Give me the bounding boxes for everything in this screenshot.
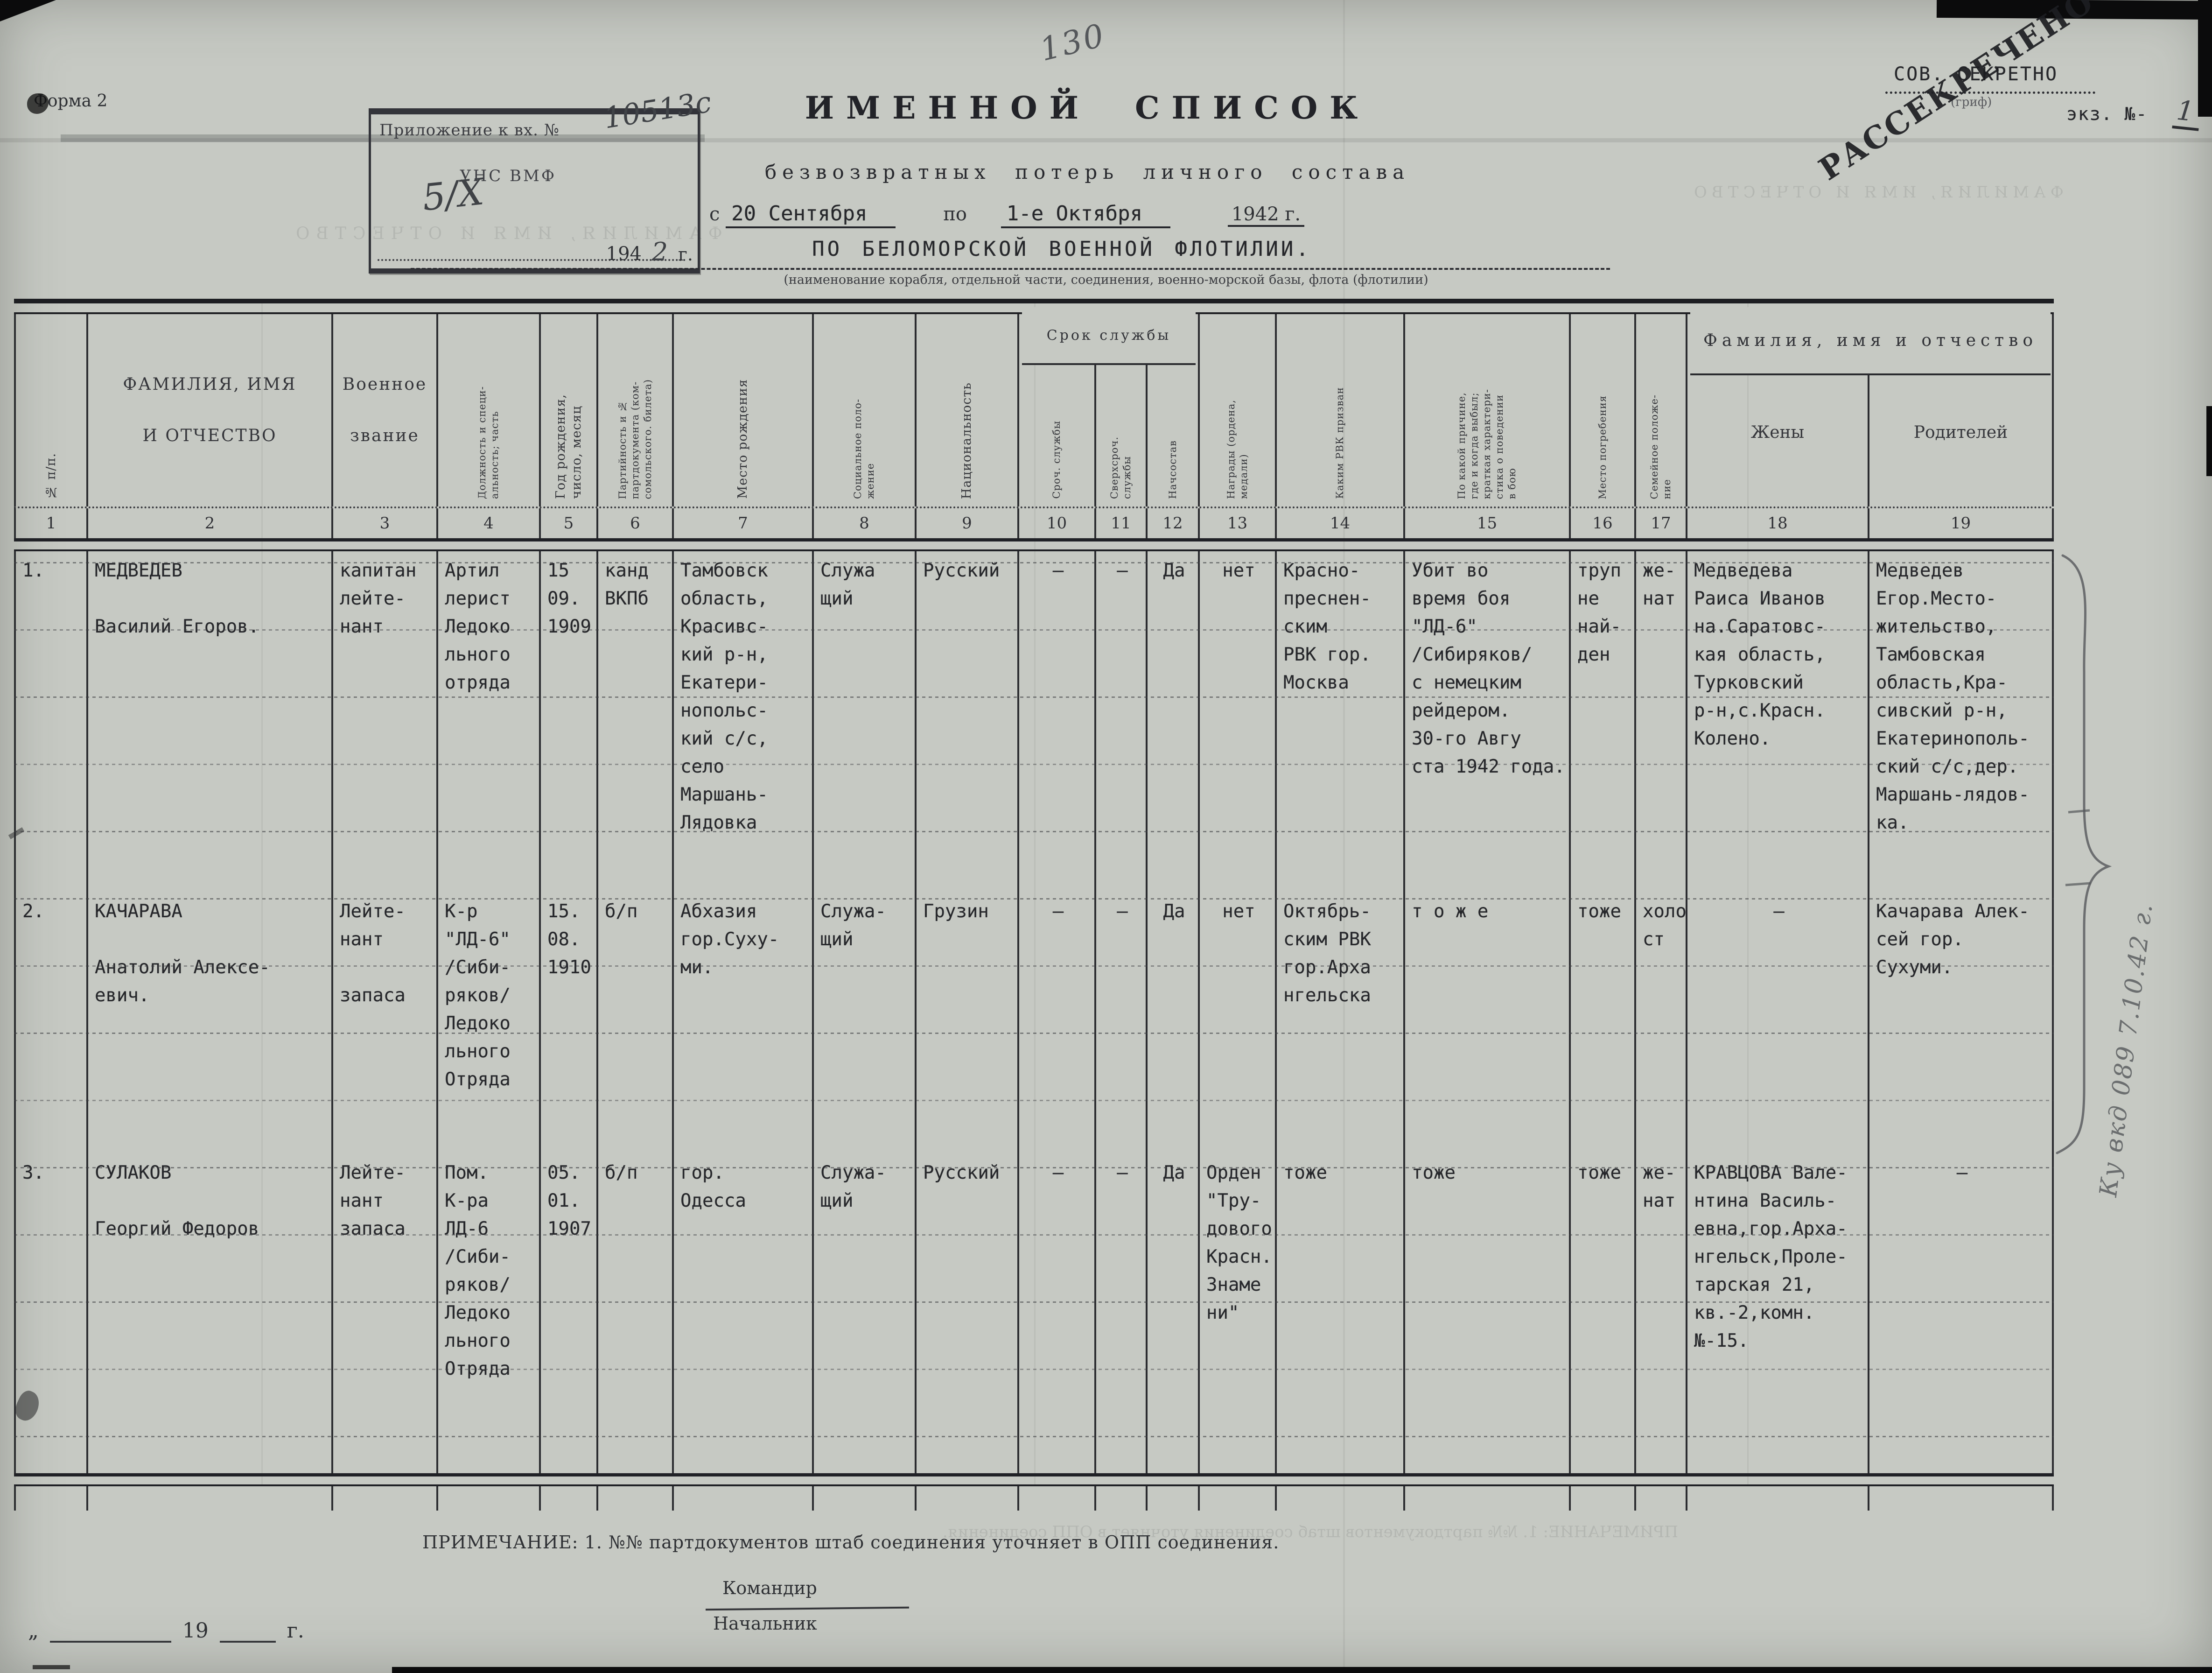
period-year: 1942 г. <box>1228 204 1304 227</box>
scan-edge-top-left <box>0 0 56 21</box>
cell-r3-birthplace: гор. Одесса <box>674 1153 814 1473</box>
cell-r3-num: 3. <box>16 1153 88 1473</box>
col-header-4-label: Должность и специ- альность; часть <box>476 386 501 499</box>
unit-name: ПО БЕЛОМОРСКОЙ ВОЕННОЙ ФЛОТИЛИИ. <box>607 237 1517 261</box>
copy-number-handwritten: 1 <box>2172 94 2202 131</box>
cell-r1-burial: труп не най- ден <box>1571 551 1636 892</box>
bleedthrough-top-right: ФАМИЛИЯ, ИМЯ И ОТЧЕСТВО <box>1689 183 2064 202</box>
dotted-line <box>14 1436 2054 1437</box>
cell-r3-awards: Орден "Тру- дового Красн. Знаме ни" <box>1200 1153 1277 1473</box>
footer-note: ПРИМЕЧАНИЕ: 1. №№ партдокументов штаб со… <box>422 1532 1279 1553</box>
stamp-number-handwritten: 10513с <box>602 84 714 135</box>
cell-r3-rank: Лейте- нант запаса <box>333 1153 438 1473</box>
colnum-14: 14 <box>1277 508 1405 538</box>
cell-r1-birthdate: 15 09. 1909 <box>541 551 598 892</box>
cell-r2-burial: тоже <box>1571 892 1636 1153</box>
cell-r1-srv-extended: – <box>1096 551 1148 892</box>
dotted-line <box>14 898 2054 900</box>
document-title: ИМЕННОЙ СПИСОК <box>789 90 1386 126</box>
group-header-family: Фамилия, имя и отчество <box>1690 307 2051 375</box>
col-header-15: По какой причине, где и когда выбыл; кра… <box>1405 314 1571 506</box>
cell-r2-rank: Лейте- нант запаса <box>333 892 438 1153</box>
colnum-9: 9 <box>917 508 1019 538</box>
cell-r3-marital: же- нат <box>1636 1153 1687 1473</box>
scan-edge-bottom <box>392 1667 2212 1673</box>
col-header-4: Должность и специ- альность; часть <box>438 314 541 506</box>
cell-r3-burial: тоже <box>1571 1153 1636 1473</box>
cell-r2-num: 2. <box>16 892 88 1153</box>
cell-r3-srv-regular: – <box>1019 1153 1096 1473</box>
colnum-15: 15 <box>1405 508 1571 538</box>
cell-r2-srv-extended: – <box>1096 892 1148 1153</box>
cell-r1-rvk: Красно- преснен- ским РВК гор. Москва <box>1277 551 1405 892</box>
col-header-14: Каким РВК призван <box>1277 314 1405 506</box>
cell-r2-srv-regular: – <box>1019 892 1096 1153</box>
col-header-3: Военное звание <box>333 314 438 506</box>
cell-r3-parents: — <box>1869 1153 2054 1473</box>
unit-underline <box>411 268 1610 270</box>
col-header-3-label: Военное звание <box>343 359 427 462</box>
col-header-18-label: Жены <box>1751 423 1804 442</box>
stamp-line1: Приложение к вх. № <box>379 121 560 140</box>
colnum-10: 10 <box>1019 508 1096 538</box>
dotted-line <box>14 1234 2054 1236</box>
dotted-line <box>14 562 2054 563</box>
cell-r2-social: Служа- щий <box>814 892 917 1153</box>
col-header-8-label: Социальное поло- жение <box>852 399 877 499</box>
period-mid: по <box>901 204 995 225</box>
col-header-6-label: Партийность и № партдокумента (ком- сомо… <box>616 379 654 499</box>
dotted-line <box>14 1167 2054 1168</box>
cell-r3-officer: Да <box>1148 1153 1200 1473</box>
dotted-line <box>14 965 2054 967</box>
dotted-line <box>14 629 2054 631</box>
col-header-15-label: По какой причине, где и когда выбыл; кра… <box>1456 389 1519 499</box>
colnum-18: 18 <box>1687 508 1869 538</box>
col-header-2-label: ФАМИЛИЯ, ИМЯ И ОТЧЕСТВО <box>123 359 296 462</box>
cell-r3-cause: тоже <box>1405 1153 1571 1473</box>
cell-r2-cause: т о ж е <box>1405 892 1571 1153</box>
commander-label: Командир <box>722 1578 817 1598</box>
footer-blank-line-1 <box>50 1622 171 1643</box>
col-header-17: Семейное положе- ние <box>1636 314 1687 506</box>
document-subtitle: безвозвратных потерь личного состава <box>700 161 1475 183</box>
cell-r3-rvk: тоже <box>1277 1153 1405 1473</box>
dotted-line <box>14 1100 2054 1101</box>
stamp-date-handwritten: 5/X <box>420 171 486 219</box>
cell-r1-party: канд ВКПб <box>598 551 674 892</box>
cell-r1-position: Артил лерист Ледоко льного отряда <box>438 551 541 892</box>
footer-open-quote: „ <box>28 1619 39 1643</box>
colnum-17: 17 <box>1636 508 1687 538</box>
footer-year-suffix: г. <box>287 1619 304 1643</box>
cell-r2-parents: Качарава Алек- сей гор. Сухуми. <box>1869 892 2054 1153</box>
col-header-8: Социальное поло- жение <box>814 314 917 506</box>
header-body-divider <box>14 538 2054 551</box>
col-header-9-label: Национальность <box>959 382 975 499</box>
col-header-13-label: Награды (ордена, медали) <box>1225 400 1250 499</box>
table-bottom-ticks <box>14 1486 2054 1511</box>
col-header-7-label: Место рождения <box>735 379 751 499</box>
document-page: ФАМИЛИЯ, ИМЯ И ОТЧЕСТВО ФАМИЛИЯ, ИМЯ И О… <box>0 0 2212 1673</box>
cell-r3-name: СУЛАКОВ Георгий Федоров <box>88 1153 333 1473</box>
colnum-16: 16 <box>1571 508 1636 538</box>
dotted-line <box>14 1369 2054 1370</box>
cell-r2-birthdate: 15. 08. 1910 <box>541 892 598 1153</box>
col-header-12-label: Начсостав <box>1167 440 1179 499</box>
period-to: 1-е Октября <box>1001 202 1170 228</box>
cell-r2-marital: холо ст <box>1636 892 1687 1153</box>
colnum-5: 5 <box>541 508 598 538</box>
period-from: 20 Сентября <box>726 202 895 228</box>
pencil-brace <box>2050 551 2115 1162</box>
col-header-14-label: Каким РВК призван <box>1334 387 1346 499</box>
cell-r2-awards: нет <box>1200 892 1277 1153</box>
col-header-6: Партийность и № партдокумента (ком- сомо… <box>598 314 674 506</box>
cell-r1-parents: Медведев Егор.Место- жительство, Тамбовс… <box>1869 551 2054 892</box>
col-header-19-label: Родителей <box>1914 423 2008 442</box>
table-row: 1. МЕДВЕДЕВ Василий Егоров. капитан лейт… <box>14 551 2054 892</box>
col-header-7: Место рождения <box>674 314 814 506</box>
cell-r3-birthdate: 05. 01. 1907 <box>541 1153 598 1473</box>
cell-r2-party: б/п <box>598 892 674 1153</box>
copy-number-label: экз. №- <box>2066 104 2148 124</box>
colnum-6: 6 <box>598 508 674 538</box>
cell-r1-srv-regular: – <box>1019 551 1096 892</box>
cell-r2-nationality: Грузин <box>917 892 1019 1153</box>
table-row: 2. КАЧАРАВА Анатолий Алексе- евич. Лейте… <box>14 892 2054 1153</box>
col-header-16: Место погребения <box>1571 314 1636 506</box>
column-number-row: 1 2 3 4 5 6 7 8 9 10 11 12 13 14 15 16 1… <box>14 506 2054 538</box>
cell-r2-wife: – <box>1687 892 1869 1153</box>
dotted-line <box>14 1301 2054 1303</box>
unit-caption: (наименование корабля, отдельной части, … <box>686 273 1526 287</box>
cell-r2-birthplace: Абхазия гор.Суху- ми. <box>674 892 814 1153</box>
footer-year-blank: 19 <box>182 1619 209 1643</box>
casualty-table: № п/п. ФАМИЛИЯ, ИМЯ И ОТЧЕСТВО Военное з… <box>14 299 2054 1511</box>
dotted-line <box>14 831 2054 832</box>
cell-r1-nationality: Русский <box>917 551 1019 892</box>
cell-r1-social: Служа щий <box>814 551 917 892</box>
col-header-1-label: № п/п. <box>43 453 59 499</box>
colnum-1: 1 <box>16 508 88 538</box>
cell-r1-officer: Да <box>1148 551 1200 892</box>
col-header-1: № п/п. <box>16 314 88 506</box>
table-row: 3. СУЛАКОВ Георгий Федоров Лейте- нант з… <box>14 1153 2054 1473</box>
colnum-4: 4 <box>438 508 541 538</box>
scan-edge-bottom-left <box>33 1665 70 1669</box>
dotted-line <box>14 1033 2054 1034</box>
cell-r1-num: 1. <box>16 551 88 892</box>
cell-r3-party: б/п <box>598 1153 674 1473</box>
colnum-11: 11 <box>1096 508 1148 538</box>
col-header-9: Национальность <box>917 314 1019 506</box>
footer-blank-line-2 <box>220 1622 276 1643</box>
table-bottom-border <box>14 1473 2054 1486</box>
colnum-19: 19 <box>1869 508 2054 538</box>
colnum-2: 2 <box>88 508 333 538</box>
period-line: с 20 Сентября по 1-е Октября 1942 г. <box>709 202 1304 225</box>
commander-signature-line <box>706 1607 909 1611</box>
cell-r1-birthplace: Тамбовск область, Красивс- кий р-н, Екат… <box>674 551 814 892</box>
cell-r1-awards: нет <box>1200 551 1277 892</box>
group-header-service-term: Срок службы <box>1022 307 1196 365</box>
footer-date-blank: „ 19 г. <box>28 1619 304 1643</box>
chief-label: Начальник <box>713 1613 817 1634</box>
col-header-11-label: Сверхсроч. службы <box>1108 436 1134 499</box>
col-header-13: Награды (ордена, медали) <box>1200 314 1277 506</box>
pencil-page-number: 130 <box>1036 17 1110 69</box>
cell-r3-nationality: Русский <box>917 1153 1019 1473</box>
col-header-2: ФАМИЛИЯ, ИМЯ И ОТЧЕСТВО <box>88 314 333 506</box>
colnum-7: 7 <box>674 508 814 538</box>
cell-r3-wife: КРАВЦОВА Вале- нтина Василь- евна,гор.Ар… <box>1687 1153 1869 1473</box>
col-header-17-label: Семейное положе- ние <box>1648 394 1673 499</box>
col-header-16-label: Место погребения <box>1596 395 1609 499</box>
cell-r3-position: Пом. К-ра ЛД-6 /Сиби- ряков/ Ледоко льно… <box>438 1153 541 1473</box>
cell-r1-name: МЕДВЕДЕВ Василий Егоров. <box>88 551 333 892</box>
cell-r2-rvk: Октябрь- ским РВК гор.Арха нгельска <box>1277 892 1405 1153</box>
col-header-5: Год рождения, число, месяц <box>541 314 598 506</box>
ink-blot <box>27 93 49 114</box>
colnum-8: 8 <box>814 508 917 538</box>
cell-r3-srv-extended: – <box>1096 1153 1148 1473</box>
colnum-3: 3 <box>333 508 438 538</box>
cell-r1-wife: Медведева Раиса Иванов на.Саратовс- кая … <box>1687 551 1869 892</box>
col-header-10-label: Сроч. службы <box>1050 421 1063 499</box>
cell-r3-social: Служа- щий <box>814 1153 917 1473</box>
col-header-5-label: Год рождения, число, месяц <box>553 394 585 499</box>
cell-r1-cause: Убит во время боя "ЛД-6" /Сибиряков/ с н… <box>1405 551 1571 892</box>
cell-r2-officer: Да <box>1148 892 1200 1153</box>
cell-r1-marital: же- нат <box>1636 551 1687 892</box>
colnum-12: 12 <box>1148 508 1200 538</box>
period-prefix: с <box>709 204 720 225</box>
cell-r2-position: К-р "ЛД-6" /Сиби- ряков/ Ледоко льного О… <box>438 892 541 1153</box>
cell-r1-rank: капитан лейте- нант <box>333 551 438 892</box>
scan-edge-right-mid <box>2206 406 2212 476</box>
cell-r2-name: КАЧАРАВА Анатолий Алексе- евич. <box>88 892 333 1153</box>
dotted-line <box>14 764 2054 765</box>
dotted-line <box>14 696 2054 698</box>
colnum-13: 13 <box>1200 508 1277 538</box>
